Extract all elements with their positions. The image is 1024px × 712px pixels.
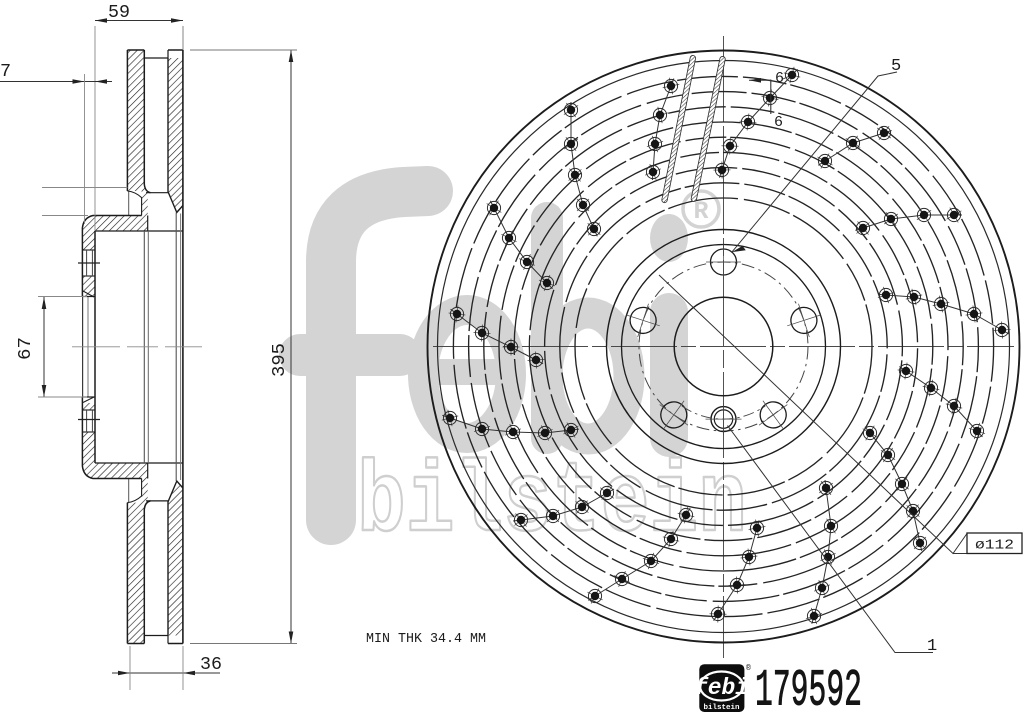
svg-text:®: ® bbox=[746, 664, 751, 673]
svg-text:6: 6 bbox=[774, 114, 783, 131]
svg-text:36: 36 bbox=[200, 654, 222, 675]
svg-text:febi: febi bbox=[694, 675, 749, 701]
svg-text:59: 59 bbox=[108, 2, 130, 23]
svg-text:bilstein: bilstein bbox=[703, 704, 740, 712]
svg-text:1: 1 bbox=[927, 637, 937, 656]
svg-text:MIN THK 34.4 MM: MIN THK 34.4 MM bbox=[366, 632, 486, 647]
svg-text:395: 395 bbox=[269, 343, 290, 377]
svg-text:ø112: ø112 bbox=[975, 539, 1014, 554]
svg-text:179592: 179592 bbox=[755, 662, 862, 712]
svg-text:bilstein: bilstein bbox=[357, 448, 747, 561]
svg-text:67: 67 bbox=[15, 337, 36, 360]
svg-text:6: 6 bbox=[775, 70, 784, 87]
svg-text:7: 7 bbox=[0, 61, 11, 82]
